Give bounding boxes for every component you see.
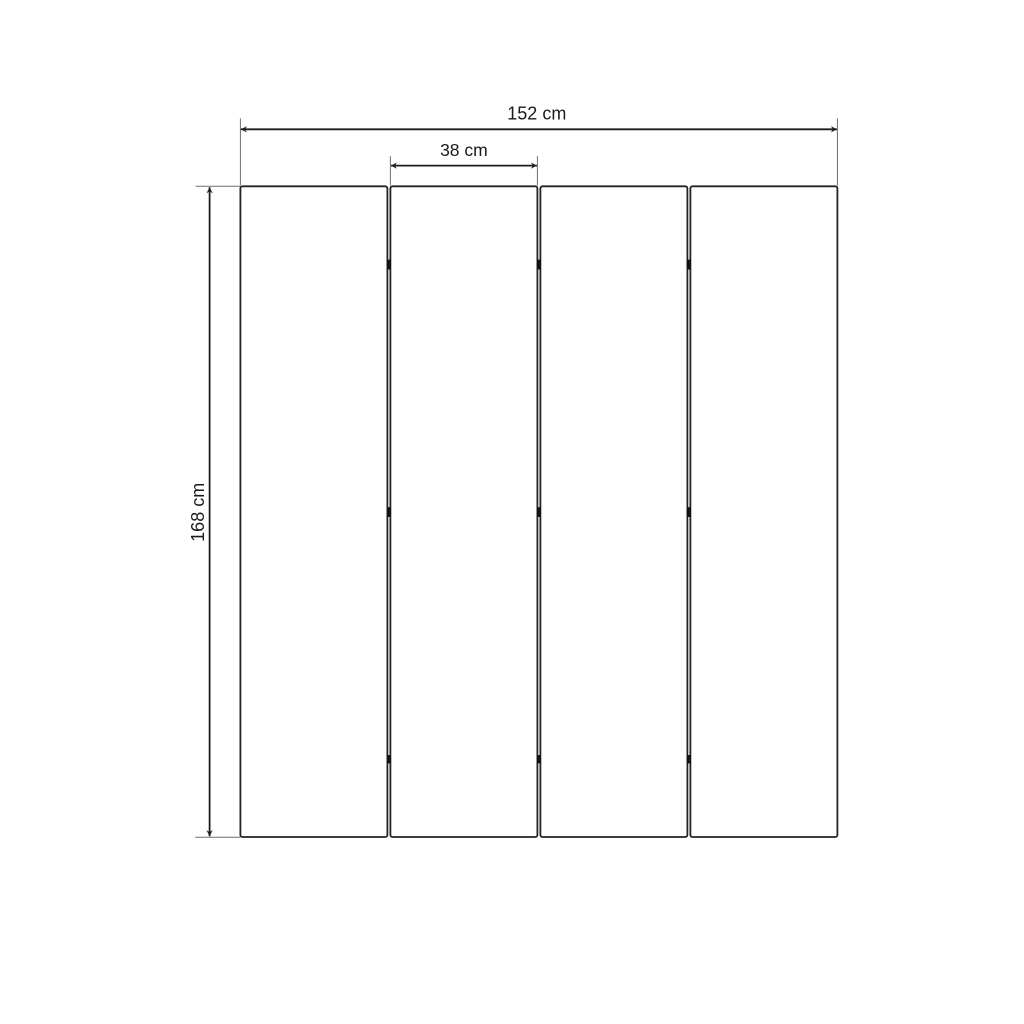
svg-text:152 cm: 152 cm	[507, 104, 566, 124]
svg-text:168 cm: 168 cm	[188, 483, 208, 542]
svg-text:38 cm: 38 cm	[440, 140, 488, 160]
